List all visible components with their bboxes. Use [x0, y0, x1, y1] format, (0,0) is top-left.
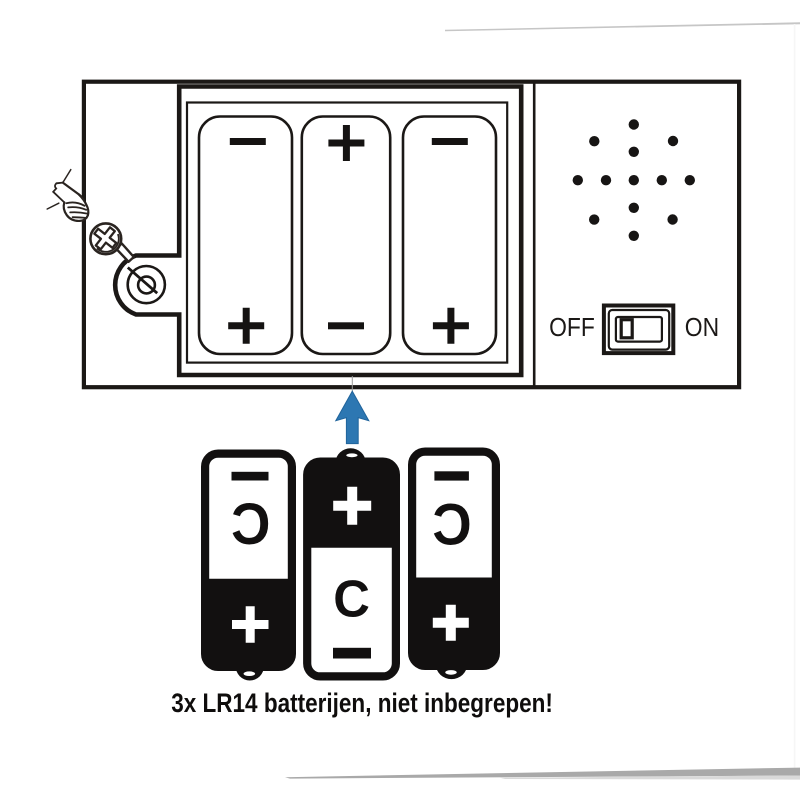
svg-text:C: C	[231, 491, 270, 556]
svg-text:3x LR14 batterijen, niet inbeg: 3x LR14 batterijen, niet inbegrepen!	[171, 688, 553, 718]
svg-text:ON: ON	[685, 314, 719, 343]
svg-text:OFF: OFF	[549, 314, 595, 343]
svg-text:C: C	[432, 491, 471, 556]
svg-text:C: C	[333, 569, 370, 628]
